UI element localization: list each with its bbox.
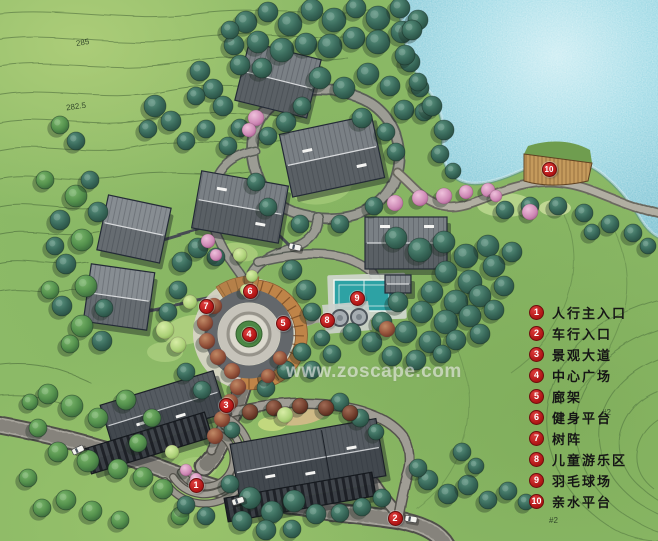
tree [464, 458, 484, 478]
legend-item-number: 9 [529, 473, 544, 488]
legend-item-9: 9羽毛球场 [529, 470, 627, 491]
tree [314, 34, 342, 62]
tree [498, 242, 522, 266]
tree [475, 491, 497, 513]
legend-item-label: 车行入口 [552, 324, 612, 343]
map-marker-9: 9 [350, 291, 365, 306]
legend-item-8: 8儿童游乐区 [529, 449, 627, 470]
tree [129, 467, 153, 491]
tree [299, 361, 321, 383]
tree [292, 280, 316, 304]
tree [84, 408, 108, 432]
tree [620, 224, 642, 246]
building [96, 195, 175, 270]
tree [252, 520, 276, 541]
legend-item-number: 10 [529, 494, 544, 509]
map-marker-3: 3 [219, 398, 234, 413]
tree [88, 331, 112, 355]
legend-item-1: 1人行主入口 [529, 302, 627, 323]
legend-item-6: 6健身平台 [529, 407, 627, 428]
tree [149, 479, 173, 503]
tree [342, 0, 366, 22]
building [279, 114, 389, 203]
tree [418, 96, 442, 120]
legend-item-7: 7树阵 [529, 428, 627, 449]
tree [376, 76, 400, 100]
tree [408, 190, 428, 210]
tree [77, 171, 99, 193]
map-marker-4: 4 [242, 327, 257, 342]
tree [449, 443, 471, 465]
tree [361, 197, 383, 219]
legend-item-number: 1 [529, 305, 544, 320]
legend-item-number: 5 [529, 389, 544, 404]
tree [15, 469, 37, 491]
tree [173, 132, 195, 154]
site-plan-canvas: www.zoscape.com 285282.5#2#2 12345678910… [0, 0, 658, 541]
map-marker-6: 6 [243, 284, 258, 299]
legend-item-number: 7 [529, 431, 544, 446]
tree [362, 30, 390, 58]
tree [57, 335, 79, 357]
legend-item-label: 亲水平台 [552, 492, 612, 511]
legend-item-number: 4 [529, 368, 544, 383]
tree [279, 520, 301, 541]
legend-item-number: 6 [529, 410, 544, 425]
tree [580, 224, 600, 244]
tree [391, 321, 417, 347]
map-marker-5: 5 [276, 316, 291, 331]
tree [254, 2, 278, 26]
map-marker-7: 7 [199, 299, 214, 314]
legend-item-label: 羽毛球场 [552, 471, 612, 490]
tree [454, 475, 478, 499]
tree [47, 116, 69, 138]
tree [173, 496, 195, 518]
building [82, 264, 158, 337]
tree [278, 260, 302, 284]
tree [193, 507, 215, 529]
legend-item-4: 4中心广场 [529, 365, 627, 386]
legend-item-number: 3 [529, 347, 544, 362]
tree [571, 204, 593, 226]
tree [339, 27, 365, 53]
tree [135, 120, 157, 142]
tree [67, 229, 93, 255]
legend-item-label: 儿童游乐区 [552, 450, 627, 469]
tree [362, 6, 390, 34]
tree [44, 442, 68, 466]
tree [390, 100, 414, 124]
tree [29, 499, 51, 521]
tree [353, 63, 379, 89]
map-marker-8: 8 [320, 313, 335, 328]
tree [495, 482, 517, 504]
legend-item-3: 3景观大道 [529, 344, 627, 365]
legend-item-2: 2车行入口 [529, 323, 627, 344]
waterfront-deck [524, 141, 592, 185]
map-marker-1: 1 [189, 478, 204, 493]
legend-item-5: 5廊架 [529, 386, 627, 407]
legend-item-label: 树阵 [552, 429, 582, 448]
map-marker-2: 2 [388, 511, 403, 526]
tree [636, 238, 656, 258]
legend-item-10: 10亲水平台 [529, 491, 627, 512]
legend-item-label: 中心广场 [552, 366, 612, 385]
tree [545, 197, 567, 219]
legend-item-label: 景观大道 [552, 345, 612, 364]
tree [378, 346, 402, 370]
tree [402, 350, 426, 374]
tree [18, 394, 38, 414]
map-marker-10: 10 [542, 162, 557, 177]
legend-item-label: 廊架 [552, 387, 582, 406]
legend-item-label: 健身平台 [552, 408, 612, 427]
legend-item-number: 8 [529, 452, 544, 467]
tree [52, 490, 76, 514]
tree [183, 87, 205, 109]
tree [193, 120, 215, 142]
tree [57, 395, 83, 421]
tree [78, 501, 102, 525]
legend-item-number: 2 [529, 326, 544, 341]
tree [107, 511, 129, 533]
tree [46, 210, 70, 234]
legend: 1人行主入口2车行入口3景观大道4中心广场5廊架6健身平台7树阵8儿童游乐区9羽… [529, 302, 627, 512]
tree [287, 215, 309, 237]
tree [32, 171, 54, 193]
legend-item-label: 人行主入口 [552, 303, 627, 322]
